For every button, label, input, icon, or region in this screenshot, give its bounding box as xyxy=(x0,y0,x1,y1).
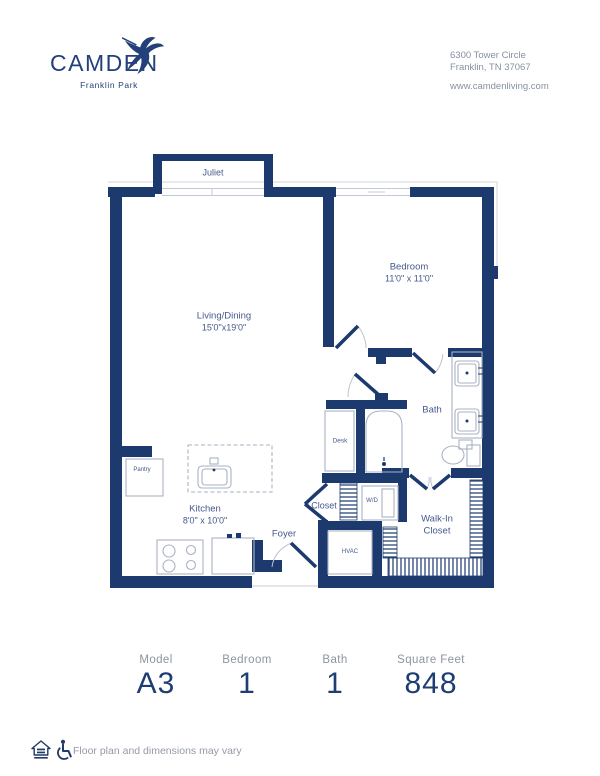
bedroom-dims: 11'0" x 11'0" xyxy=(385,273,433,285)
summary-sqft: Square Feet 848 xyxy=(397,654,465,701)
kitchen-dims: 8'0" x 10'0" xyxy=(183,515,227,527)
toilet-bowl xyxy=(442,446,464,464)
summary-bedroom-label: Bedroom xyxy=(222,654,271,666)
left-wall xyxy=(110,187,122,588)
bath-vanity xyxy=(452,352,482,438)
floorplan-drawing xyxy=(0,0,600,776)
summary-model: Model A3 xyxy=(137,654,176,701)
kitchen-label: Kitchen 8'0" x 10'0" xyxy=(183,504,227,527)
tub-drain xyxy=(382,462,386,466)
summary-bedroom-value: 1 xyxy=(222,667,271,701)
bedroom-label: Bedroom 11'0" x 11'0" xyxy=(385,262,433,285)
summary-sqft-label: Square Feet xyxy=(397,654,465,666)
walkin-shelving-bottom xyxy=(388,558,483,576)
bath-label: Bath xyxy=(422,404,442,416)
bedroom-door-arc xyxy=(358,326,366,348)
walkin-closet-label: Walk-In Closet xyxy=(408,514,466,537)
bottom-wall-right xyxy=(318,576,494,588)
closet-label: Closet xyxy=(311,500,337,512)
kitchen-name: Kitchen xyxy=(183,504,227,516)
burner xyxy=(187,546,196,555)
pantry-label: Pantry xyxy=(133,467,150,473)
summary-sqft-value: 848 xyxy=(397,667,465,701)
floorplan-flyer: CAMDEN Franklin Park 6300 Tower Circle F… xyxy=(0,0,600,776)
desk-label: Desk xyxy=(333,438,348,445)
bath-door-arc xyxy=(435,354,443,373)
foyer-label: Foyer xyxy=(272,528,296,540)
counter-faucet xyxy=(227,534,232,538)
walkin-shelving-left xyxy=(383,527,397,558)
disclaimer-text: Floor plan and dimensions may vary xyxy=(73,745,242,757)
summary-bedroom: Bedroom 1 xyxy=(222,654,271,701)
pantry-cabinet xyxy=(126,459,163,496)
hvac-label: HVAC xyxy=(342,549,358,555)
summary-bath-value: 1 xyxy=(322,667,347,701)
island-faucet xyxy=(210,458,218,464)
toilet-tank xyxy=(467,445,480,466)
wheelchair-icon xyxy=(54,739,74,761)
bedroom-name: Bedroom xyxy=(385,262,433,274)
summary-model-label: Model xyxy=(137,654,176,666)
hvac-right-wall xyxy=(372,521,382,588)
bottom-wall-left xyxy=(110,576,252,588)
kitchen-counter xyxy=(212,538,254,574)
walkin-doors xyxy=(410,475,450,489)
bedroom-door xyxy=(336,326,358,348)
summary-bath: Bath 1 xyxy=(322,654,347,701)
summary-model-value: A3 xyxy=(137,667,176,701)
hall-shelving xyxy=(340,483,357,520)
summary-bath-label: Bath xyxy=(322,654,347,666)
hall-door xyxy=(355,374,380,396)
entry-door xyxy=(291,543,316,567)
juliet-balcony-label: Juliet xyxy=(202,167,223,179)
living-dining-label: Living/Dining 15'0"x19'0" xyxy=(197,311,251,334)
equal-housing-icon xyxy=(30,740,52,760)
burner xyxy=(163,545,175,557)
fixtures xyxy=(126,352,483,574)
burner xyxy=(187,561,196,570)
hall-door-arc xyxy=(348,374,355,397)
juliet-top-wall xyxy=(153,154,273,161)
right-wall xyxy=(482,187,494,588)
living-dining-dims: 15'0"x19'0" xyxy=(197,322,251,334)
burner xyxy=(163,560,175,572)
kitchen-island xyxy=(188,445,272,492)
hvac-left-wall xyxy=(318,520,328,588)
walkin-shelving-right xyxy=(470,480,483,558)
walkin-door-arcs xyxy=(427,477,433,489)
pantry-wall-stub xyxy=(122,446,152,457)
living-bedroom-wall xyxy=(323,187,334,347)
living-dining-name: Living/Dining xyxy=(197,311,251,323)
washer-dryer-label: W/D xyxy=(366,498,378,504)
bath-door xyxy=(413,353,435,373)
